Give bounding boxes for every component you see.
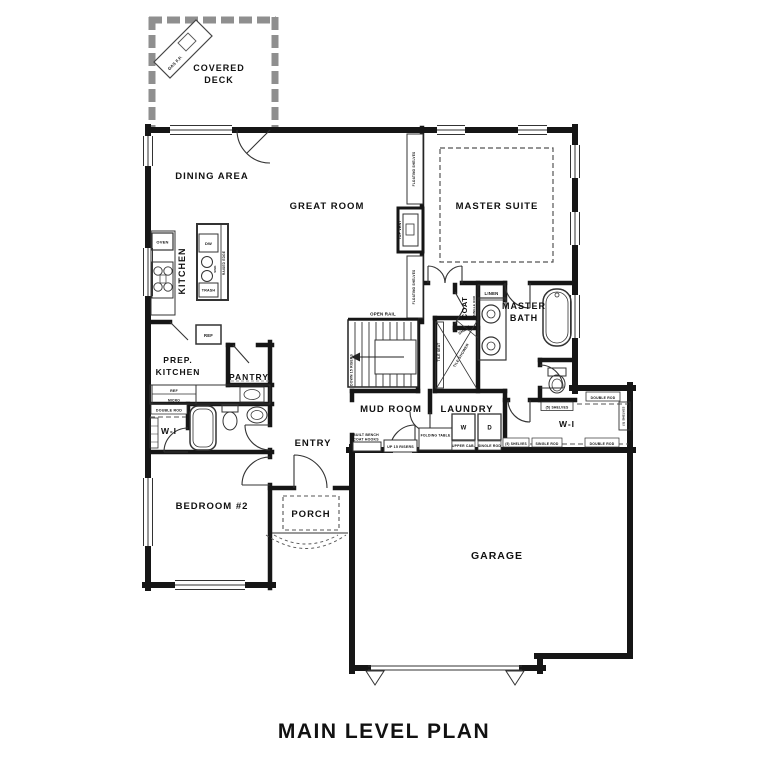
floating-shelves-upper-label: FLOATING SHELVES — [412, 152, 416, 187]
folding-table-label: FOLDING TABLE — [421, 434, 451, 438]
label-garage: GARAGE — [471, 550, 523, 562]
stairs: DOWN 15 RISERS OPEN RAIL — [348, 312, 418, 388]
label-great-room: GREAT ROOM — [290, 201, 365, 212]
upper-cab-label: UPPER CAB. — [452, 444, 475, 448]
label-walk-in-left: W-I — [161, 426, 177, 436]
label-pantry: PANTRY — [229, 372, 269, 382]
coat-rod-label: SINGLE ROD — [472, 295, 476, 316]
label-covered-deck-1: COVERED — [193, 63, 245, 73]
label-master-suite: MASTER SUITE — [456, 201, 539, 212]
floor-plan-page: GAS F.P. — [0, 0, 768, 768]
fridge-label: REF — [204, 333, 213, 338]
kitchen-fridge: REF — [196, 325, 221, 344]
island-sink-label: SINK — [213, 265, 217, 272]
plan-title: MAIN LEVEL PLAN — [278, 720, 490, 743]
coat-label: COAT — [460, 297, 469, 320]
label-covered-deck-2: DECK — [204, 75, 234, 85]
oven-label: OVEN — [156, 240, 168, 245]
folding-table: FOLDING TABLE — [419, 428, 452, 450]
label-master-bath-2: BATH — [510, 313, 538, 323]
raised-edge-label: RAISED EDGE — [222, 251, 226, 275]
top-vent-label: TOP VENT — [398, 220, 402, 240]
label-bedroom-2: BEDROOM #2 — [176, 501, 249, 512]
tile-seat-label: TILE SEAT — [437, 342, 441, 362]
label-porch: PORCH — [291, 509, 330, 520]
great-room-fireplace: TOP VENT — [398, 208, 423, 252]
laundry-rod-label: SINGLE ROD — [478, 444, 501, 448]
wi-double-rod-bottom-label: DOUBLE ROD — [590, 442, 615, 446]
label-prep-kitchen-2: KITCHEN — [156, 367, 201, 377]
label-entry: ENTRY — [295, 438, 332, 449]
up-risers-label: UP 15 RISERS — [387, 445, 414, 449]
garage-door — [366, 666, 524, 685]
coat-hooks-label: COAT HOOKS — [353, 438, 379, 442]
label-walk-in-master: W-I — [559, 419, 575, 429]
bath2-fixtures — [190, 405, 267, 450]
stairs-down-label: DOWN 15 RISERS — [350, 354, 354, 386]
label-master-bath-1: MASTER — [502, 301, 546, 311]
built-bench-label: BUILT BENCH — [353, 433, 379, 437]
washer-label: W — [461, 426, 467, 432]
floor-plan-drawing: GAS F.P. — [0, 0, 768, 768]
wi-shelves-side-label: (5) SHELVES — [622, 406, 626, 425]
trash-label: TRASH — [202, 289, 216, 293]
prep-micro-label: MICRO — [168, 399, 180, 403]
up-risers-step: UP 15 RISERS — [384, 440, 417, 452]
label-dining-area: DINING AREA — [175, 171, 248, 182]
wi-shelves-bottom-label: (5) SHELVES — [505, 442, 527, 446]
washer-dryer: W D UPPER CAB. SINGLE ROD — [452, 414, 501, 450]
label-laundry: LAUNDRY — [440, 404, 493, 415]
wc-shelves-label: (5) SHELVES — [546, 406, 569, 410]
mudroom-bench: BUILT BENCH COAT HOOKS — [353, 433, 381, 451]
prep-fridge-label: REF — [170, 389, 178, 393]
open-rail-label: OPEN RAIL — [370, 312, 396, 317]
master-tub — [543, 289, 571, 346]
label-prep-kitchen-1: PREP. — [163, 355, 192, 365]
porch — [266, 496, 348, 549]
left-double-rod-label: DOUBLE ROD — [156, 409, 182, 413]
dishwasher-label: DW — [205, 241, 212, 246]
label-mud-room: MUD ROOM — [360, 404, 422, 415]
wi-double-rod-top-label: DOUBLE ROD — [591, 396, 616, 400]
floating-shelves-lower-label: FLOATING SHELVES — [412, 270, 416, 305]
linen-label: LINEN — [485, 291, 499, 296]
wi-single-rod-label: SINGLE ROD — [535, 442, 558, 446]
dryer-label: D — [487, 426, 492, 432]
kitchen-label: KITCHEN — [177, 248, 187, 295]
